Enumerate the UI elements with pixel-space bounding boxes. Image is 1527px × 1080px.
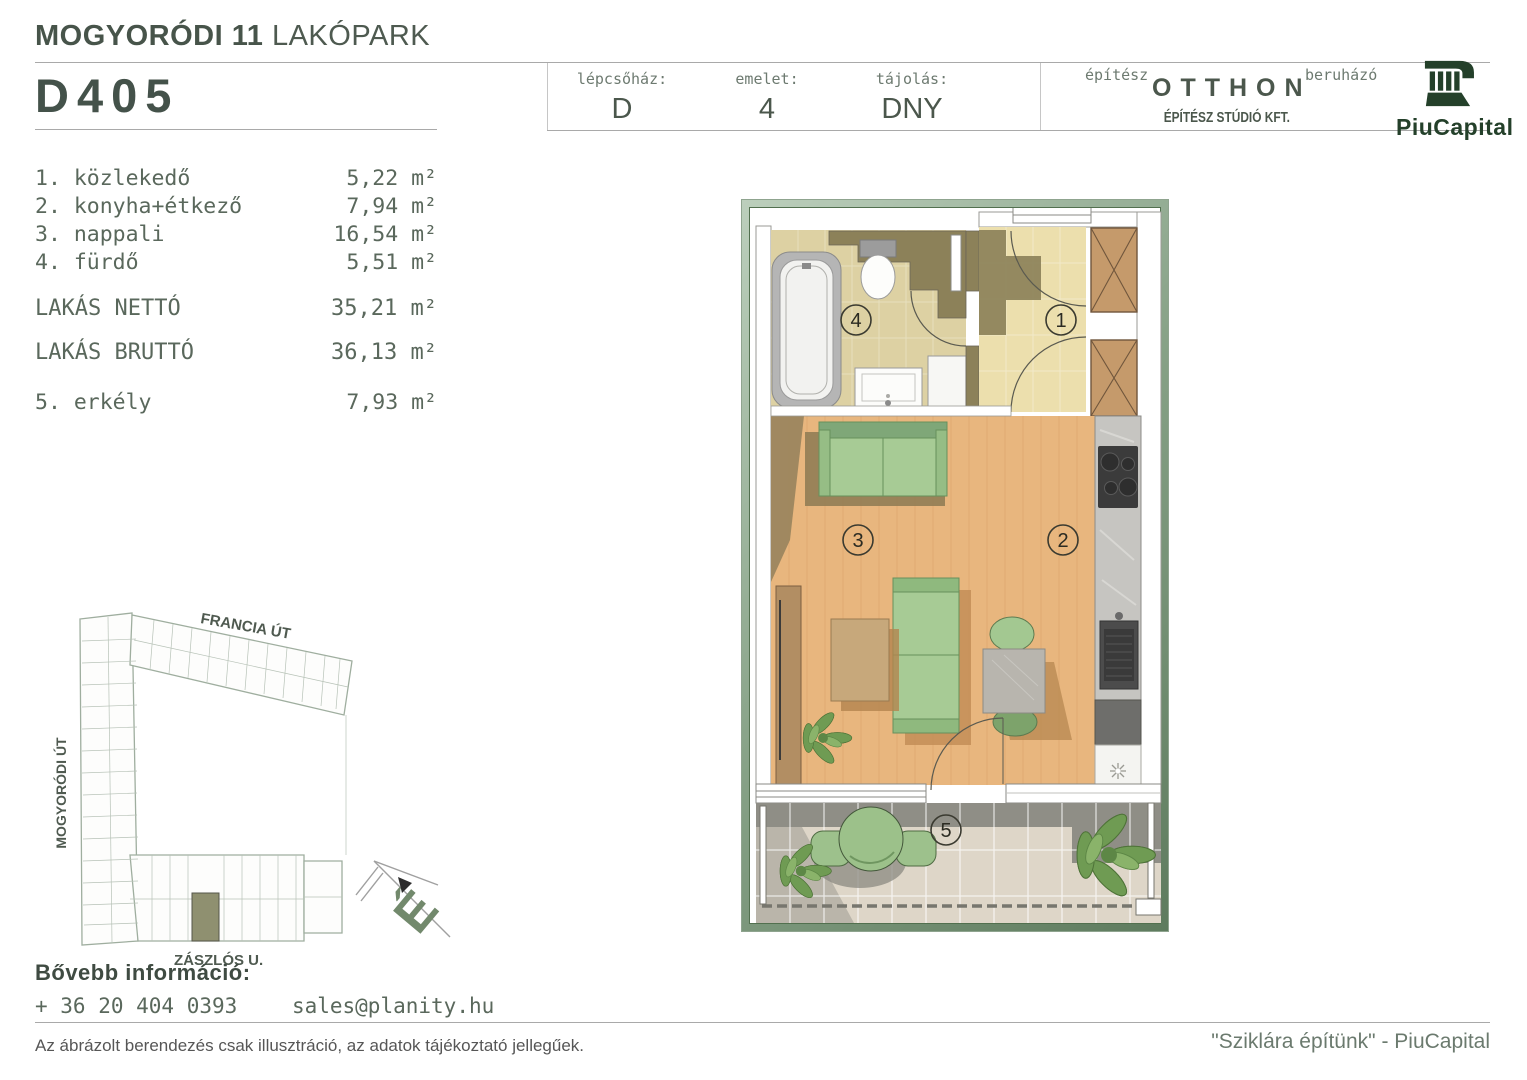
entry-window-icon (1013, 208, 1091, 223)
balcony-num: 5. (35, 389, 74, 417)
total-net-area: 35,21 (331, 295, 397, 323)
project-title: MOGYORÓDI 11 LAKÓPARK (35, 20, 430, 53)
unit-id-rule (35, 129, 437, 130)
field-floor: emelet: 4 (692, 70, 842, 126)
room-row-1: 1. közlekedő 5,22 m² (35, 165, 437, 193)
field-staircase-label: lépcsőház: (547, 70, 697, 88)
total-gross-area: 36,13 (331, 339, 397, 367)
developer-name: PiuCapital (1396, 114, 1500, 141)
daybed-icon (893, 578, 971, 745)
toilet-icon (860, 240, 896, 299)
field-orientation-value: DNY (837, 93, 987, 126)
project-title-light: LAKÓPARK (272, 20, 430, 52)
room-1-area: 5,22 (333, 165, 398, 193)
room-3-unit: m² (411, 221, 437, 249)
total-net-row: LAKÁS NETTÓ 35,21 m² (35, 295, 437, 323)
floor-plan-canvas: 4 1 3 2 5 (749, 207, 1161, 924)
room-label-1: 1 (1055, 310, 1066, 332)
dishwasher-icon (1095, 700, 1141, 745)
site-highlighted-unit (192, 893, 219, 941)
wardrobe-icons (1091, 228, 1137, 416)
total-gross-unit: m² (411, 339, 438, 367)
cooktop-icon (1098, 446, 1138, 508)
kitchen (1095, 416, 1141, 796)
room-area-list: 1. közlekedő 5,22 m² 2. konyha+étkező 7,… (35, 165, 437, 417)
room-label-4: 4 (850, 310, 861, 332)
total-net-label: LAKÁS NETTÓ (35, 295, 331, 323)
north-compass: É (348, 833, 466, 951)
slogan-text: "Sziklára építünk" - PiuCapital (1211, 1030, 1490, 1054)
architect-logo: OTTHON ÉPÍTÉSZ STÚDIÓ KFT. (1152, 74, 1282, 126)
field-orientation: tájolás: DNY (837, 70, 987, 126)
sink-icon (855, 368, 922, 411)
header-top-rule (35, 62, 1490, 63)
facade-wall (756, 784, 1161, 803)
footer-rule (35, 1022, 1490, 1023)
room-1-unit: m² (411, 165, 437, 193)
field-staircase-value: D (547, 93, 697, 126)
side-table-icon (831, 619, 899, 711)
contact-phone: + 36 20 404 0393 (35, 994, 237, 1018)
room-4-num: 4. (35, 249, 74, 277)
total-net-unit: m² (411, 295, 438, 323)
vent-symbol-icon (1110, 763, 1126, 779)
room-row-3: 3. nappali 16,54 m² (35, 221, 437, 249)
balcony-name: erkély (74, 389, 334, 417)
room-4-unit: m² (411, 249, 437, 277)
room-row-2: 2. konyha+étkező 7,94 m² (35, 193, 437, 221)
kitchen-sink-icon (1100, 612, 1138, 689)
room-3-area: 16,54 (333, 221, 398, 249)
room-label-5: 5 (940, 820, 951, 842)
architect-label: építész (1085, 66, 1148, 84)
room-label-2: 2 (1057, 530, 1068, 552)
cabinet-icon (776, 586, 801, 784)
field-orientation-label: tájolás: (837, 70, 987, 88)
contact-email: sales@planity.hu (292, 994, 494, 1018)
room-2-area: 7,94 (333, 193, 398, 221)
floor-plan: 4 1 3 2 5 (750, 208, 1162, 925)
balcony-area: 7,93 (333, 389, 398, 417)
room-2-name: konyha+étkező (74, 193, 334, 221)
bathroom (771, 230, 979, 412)
room-3-name: nappali (74, 221, 334, 249)
room-1-name: közlekedő (74, 165, 334, 193)
field-staircase: lépcsőház: D (547, 70, 697, 126)
room-4-name: fürdő (74, 249, 334, 277)
disclaimer-text: Az ábrázolt berendezés csak illusztráció… (35, 1036, 584, 1056)
total-gross-label: LAKÁS BRUTTÓ (35, 339, 331, 367)
bathtub-icon (772, 252, 841, 408)
developer-label: beruházó (1305, 66, 1377, 84)
datasheet-page: MOGYORÓDI 11 LAKÓPARK D405 lépcsőház: D … (0, 0, 1527, 1080)
sofa-icon (805, 422, 947, 506)
room-2-unit: m² (411, 193, 437, 221)
room-row-4: 4. fürdő 5,51 m² (35, 249, 437, 277)
bath-living-wall (771, 406, 1011, 416)
total-gross-row: LAKÁS BRUTTÓ 36,13 m² (35, 339, 437, 367)
field-floor-label: emelet: (692, 70, 842, 88)
compass-north-letter: É (383, 880, 450, 944)
room-2-num: 2. (35, 193, 74, 221)
project-title-bold: MOGYORÓDI 11 (35, 20, 263, 52)
street-label-mogyorodi: MOGYORÓDI ÚT (52, 737, 69, 849)
room-1-num: 1. (35, 165, 74, 193)
room-label-3: 3 (852, 530, 863, 552)
piucapital-column-icon (1419, 58, 1477, 108)
field-floor-value: 4 (692, 93, 842, 126)
contact-line: + 36 20 404 0393 sales@planity.hu (35, 994, 494, 1018)
contact-heading: Bővebb információ: (35, 960, 251, 986)
bath-hall-wall (966, 231, 979, 412)
room-4-area: 5,51 (333, 249, 398, 277)
unit-id: D405 (35, 68, 179, 123)
developer-logo: PiuCapital (1396, 58, 1500, 141)
bathroom-door-leaf (951, 235, 961, 291)
floor-plan-frame: 4 1 3 2 5 (741, 199, 1169, 932)
room-3-num: 3. (35, 221, 74, 249)
header-divider-2 (1040, 63, 1041, 130)
balcony-row: 5. erkély 7,93 m² (35, 389, 437, 417)
balcony-unit: m² (411, 389, 437, 417)
architect-name: OTTHON (1152, 74, 1282, 103)
architect-subtitle: ÉPÍTÉSZ STÚDIÓ KFT. (1164, 110, 1271, 126)
washer-icon (928, 356, 966, 411)
header-bottom-rule (547, 130, 1490, 131)
